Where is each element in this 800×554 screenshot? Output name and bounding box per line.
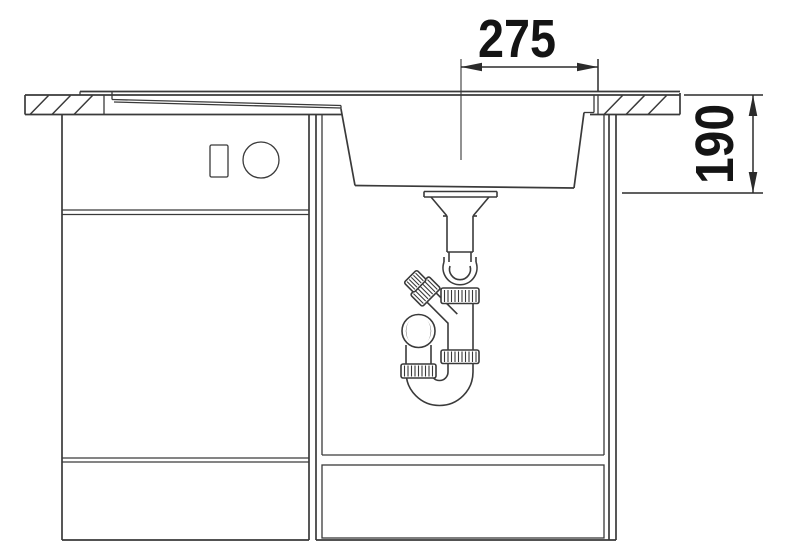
sink bbox=[80, 92, 680, 189]
tailpipe bbox=[447, 216, 473, 262]
appliance-control-display bbox=[210, 145, 228, 177]
technical-drawing-canvas: 275 190 bbox=[0, 0, 800, 554]
dim-275-label: 275 bbox=[478, 9, 556, 69]
drain-flange bbox=[424, 192, 497, 198]
dim-190-arrow-top bbox=[749, 95, 758, 116]
union-nut-right bbox=[441, 350, 479, 364]
drain-and-trap bbox=[401, 192, 497, 406]
cabinet-plinth-panel bbox=[322, 465, 604, 538]
dim-190-arrow-bottom bbox=[749, 172, 758, 193]
union-nut-top bbox=[441, 288, 479, 304]
dim-190-label: 190 bbox=[685, 104, 745, 184]
riser-ball-end bbox=[402, 315, 435, 348]
base-cabinet bbox=[62, 115, 616, 541]
union-nut-left bbox=[401, 364, 436, 378]
bowl-bottom bbox=[355, 186, 574, 189]
drain-funnel bbox=[431, 197, 489, 216]
sink-installation-drawing: 275 190 bbox=[0, 0, 800, 554]
ball-joint bbox=[443, 257, 477, 285]
bowl-left-wall bbox=[341, 109, 355, 186]
countertop bbox=[25, 93, 680, 115]
countertop-hatch-right bbox=[604, 96, 667, 115]
dim-275-arrow-right bbox=[577, 63, 598, 72]
appliance-control-knob bbox=[243, 142, 279, 178]
dimension-horizontal-275: 275 bbox=[461, 9, 598, 160]
bowl-right-wall bbox=[574, 113, 584, 189]
dimension-vertical-190: 190 bbox=[622, 95, 763, 193]
countertop-hatch-left bbox=[30, 96, 93, 115]
